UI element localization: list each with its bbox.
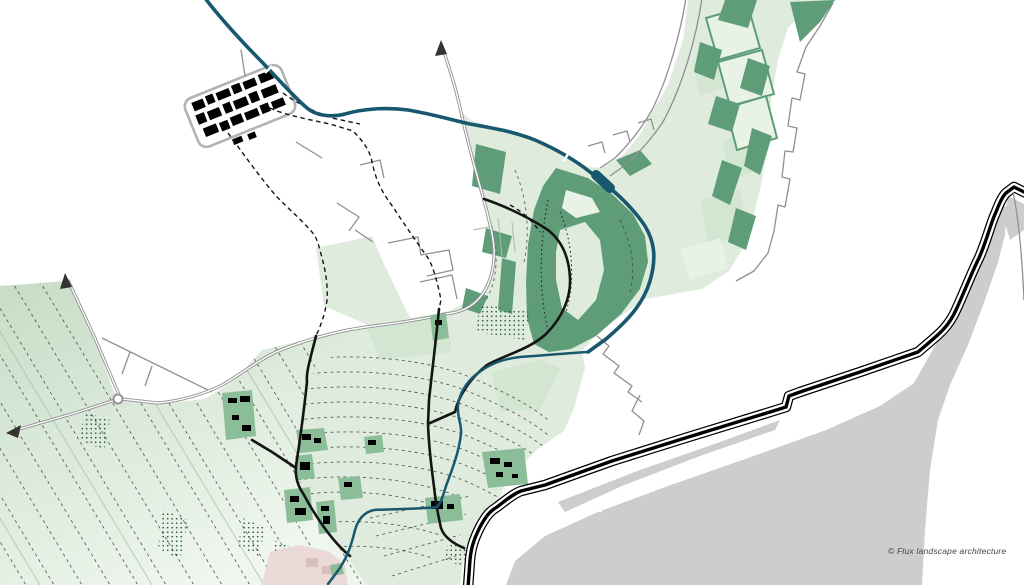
tidal-flat-northeast <box>1004 196 1024 240</box>
map-attribution: © Flux landscape architecture <box>888 546 1006 556</box>
roundabout <box>114 395 123 404</box>
map-canvas: © Flux landscape architecture <box>0 0 1024 585</box>
footpath-village-south <box>228 133 327 336</box>
village-buildings <box>190 69 293 155</box>
polder-patch-west <box>316 236 410 326</box>
forest-patch <box>472 144 506 194</box>
historic-village <box>172 38 301 158</box>
arrow-north <box>435 40 447 56</box>
forest-patch <box>790 0 835 42</box>
masterplan-map <box>0 0 1024 585</box>
parcel-zigzag <box>597 336 642 402</box>
